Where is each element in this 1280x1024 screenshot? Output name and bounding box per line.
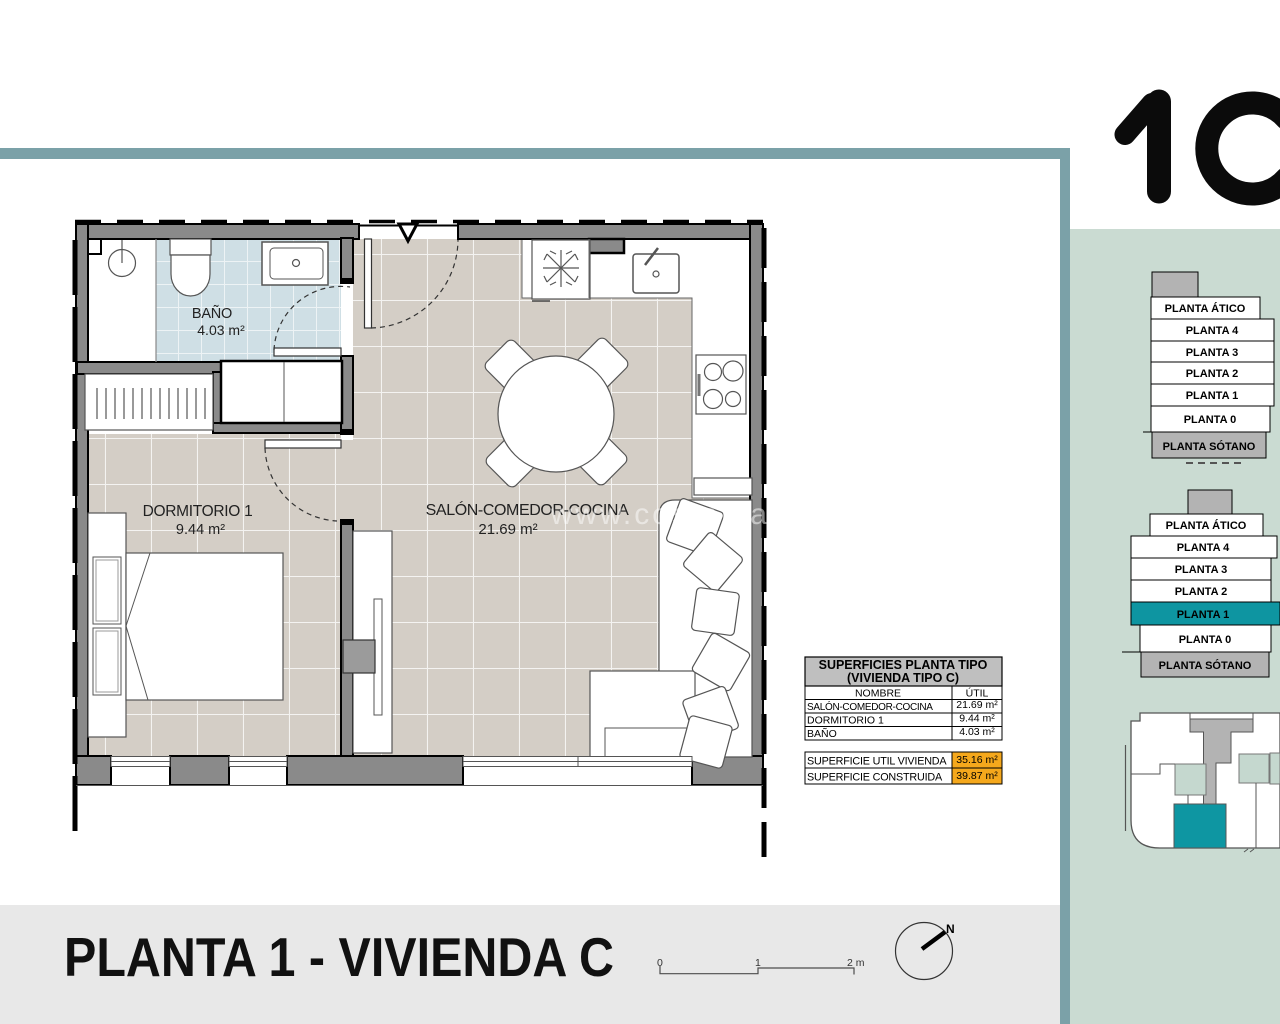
svg-text:DORMITORIO 1: DORMITORIO 1 — [143, 503, 253, 520]
svg-text:1: 1 — [755, 957, 761, 969]
svg-text:NOMBRE: NOMBRE — [855, 688, 901, 700]
svg-text:PLANTA 1: PLANTA 1 — [1186, 390, 1239, 402]
svg-text:PLANTA SÓTANO: PLANTA SÓTANO — [1163, 440, 1256, 453]
svg-text:SALÓN-COMEDOR-COCINA: SALÓN-COMEDOR-COCINA — [807, 700, 933, 713]
svg-text:PLANTA SÓTANO: PLANTA SÓTANO — [1159, 659, 1252, 672]
svg-text:PLANTA ÁTICO: PLANTA ÁTICO — [1165, 302, 1246, 315]
svg-text:39.87 m²: 39.87 m² — [956, 770, 998, 782]
svg-text:PLANTA 0: PLANTA 0 — [1179, 634, 1232, 646]
svg-text:PLANTA 2: PLANTA 2 — [1186, 368, 1239, 380]
svg-text:SUPERFICIE UTIL VIVIENDA: SUPERFICIE UTIL VIVIENDA — [807, 756, 947, 768]
svg-text:21.69 m²: 21.69 m² — [956, 699, 998, 711]
svg-text:DORMITORIO 1: DORMITORIO 1 — [807, 715, 884, 727]
svg-text:SUPERFICIES PLANTA TIPO: SUPERFICIES PLANTA TIPO — [819, 658, 988, 672]
svg-text:PLANTA 4: PLANTA 4 — [1186, 325, 1239, 337]
svg-text:ÚTIL: ÚTIL — [966, 687, 989, 700]
svg-text:PLANTA 3: PLANTA 3 — [1186, 347, 1239, 359]
svg-text:PLANTA 1 - VIVIENDA C: PLANTA 1 - VIVIENDA C — [64, 926, 614, 988]
svg-text:(VIVIENDA TIPO C): (VIVIENDA TIPO C) — [847, 671, 959, 685]
svg-text:4.03 m²: 4.03 m² — [959, 726, 995, 738]
svg-text:PLANTA ÁTICO: PLANTA ÁTICO — [1166, 519, 1247, 532]
svg-text:BAÑO: BAÑO — [192, 305, 232, 322]
svg-text:4.03 m²: 4.03 m² — [197, 322, 245, 338]
svg-text:PLANTA 3: PLANTA 3 — [1175, 564, 1228, 576]
svg-text:9.44 m²: 9.44 m² — [959, 713, 995, 725]
svg-text:2 m: 2 m — [847, 957, 865, 969]
svg-text:PLANTA 4: PLANTA 4 — [1177, 542, 1230, 554]
svg-text:35.16 m²: 35.16 m² — [956, 754, 998, 766]
svg-text:21.69 m²: 21.69 m² — [478, 521, 537, 538]
svg-text:PLANTA 2: PLANTA 2 — [1175, 586, 1228, 598]
svg-text:PLANTA 1: PLANTA 1 — [1177, 609, 1230, 621]
svg-text:0: 0 — [657, 957, 663, 969]
svg-text:www.costablancahomes.com: www.costablancahomes.com — [550, 498, 1010, 531]
svg-text:9.44 m²: 9.44 m² — [176, 522, 225, 538]
svg-text:BAÑO: BAÑO — [807, 727, 837, 740]
svg-text:SUPERFICIE CONSTRUIDA: SUPERFICIE CONSTRUIDA — [807, 772, 943, 784]
svg-text:N: N — [946, 922, 955, 936]
svg-text:PLANTA 0: PLANTA 0 — [1184, 414, 1237, 426]
